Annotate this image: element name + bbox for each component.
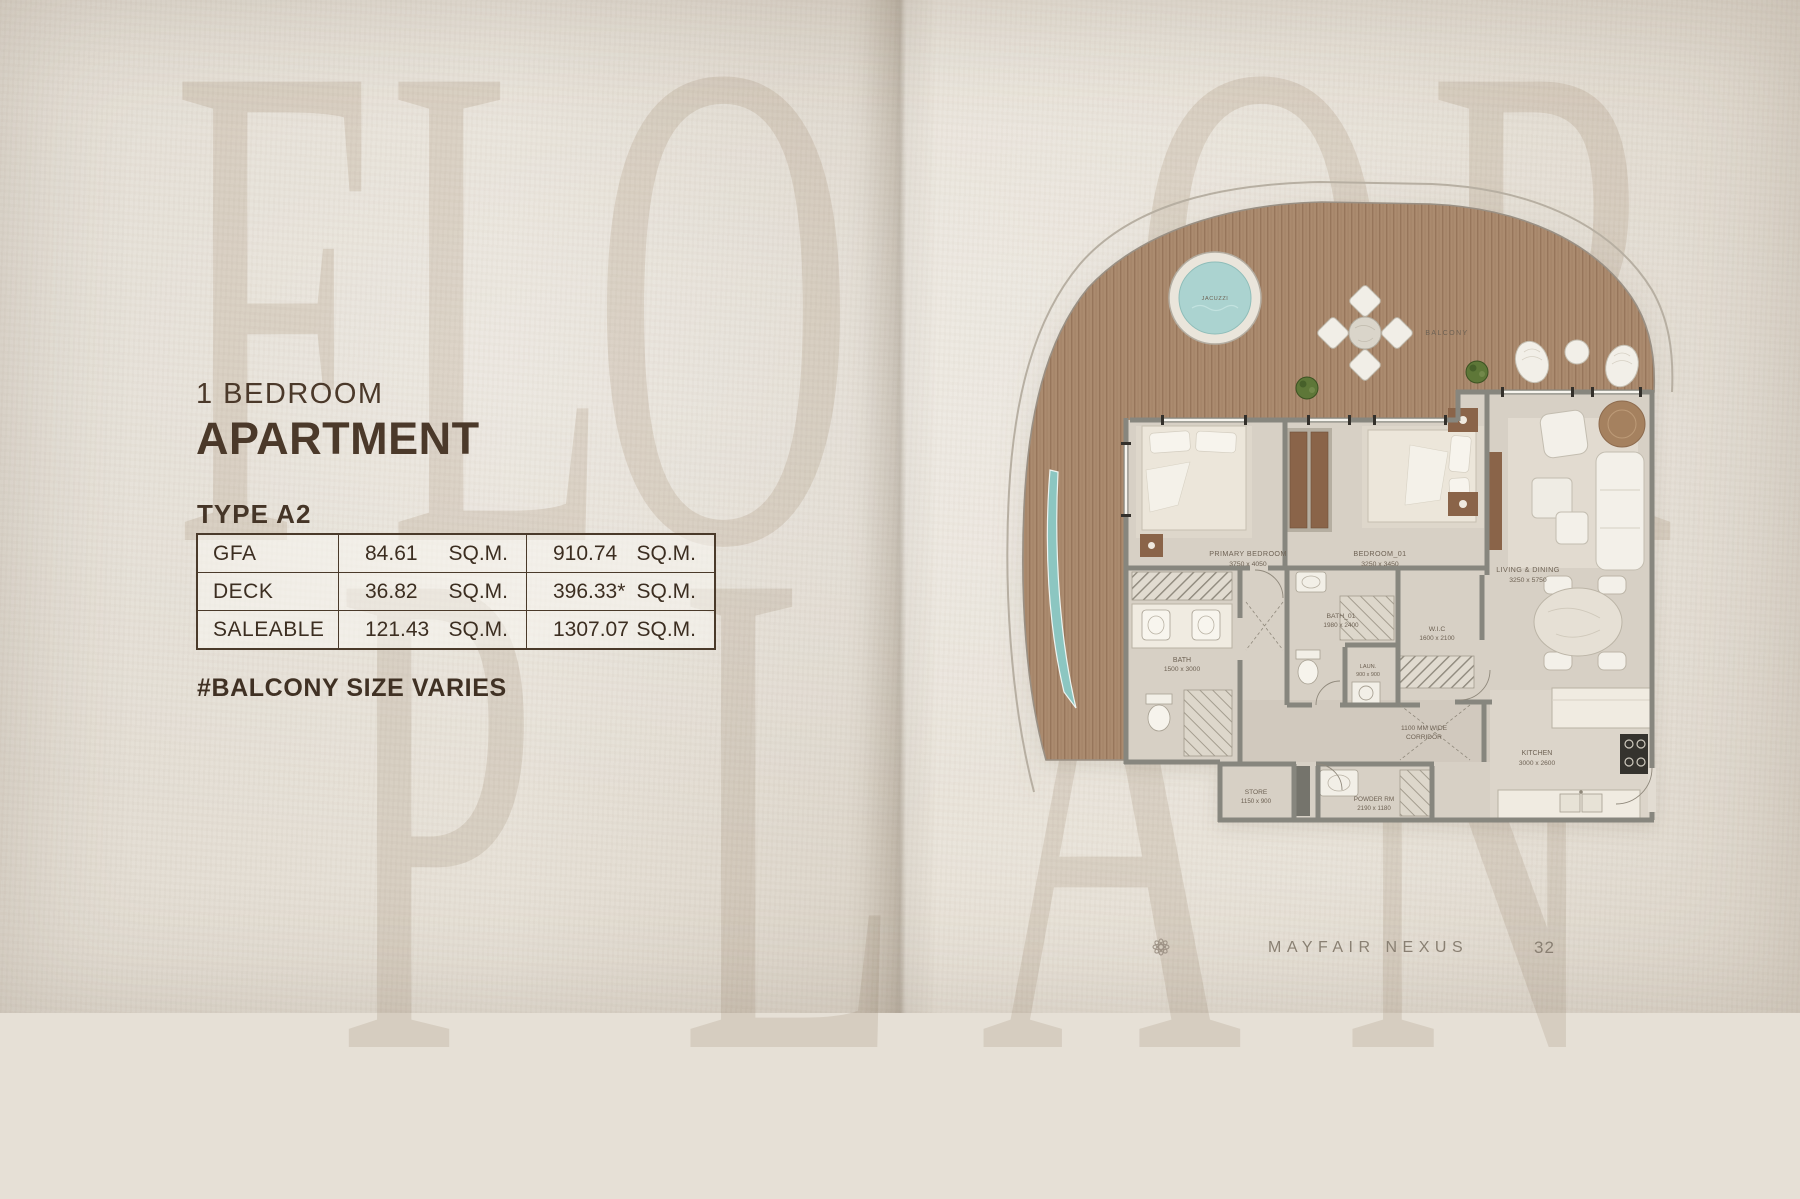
page-header: 1 BEDROOM APARTMENT: [196, 378, 480, 465]
table-cell-alt: 910.74 SQ.M.: [527, 535, 714, 573]
area-value: 396.33*: [553, 580, 625, 604]
floor-plan: JACUZZI BALCONY: [980, 180, 1680, 840]
jacuzzi: JACUZZI: [1169, 252, 1261, 344]
bath01-dims: 1980 x 2400: [1323, 622, 1359, 629]
toilet: [1146, 694, 1172, 704]
corridor-floor: [1240, 700, 1490, 762]
area-unit: SQ.M.: [448, 580, 508, 604]
corridor-label-1: 1100 MM WIDE: [1401, 725, 1448, 732]
table-cell-sqm: 84.61 SQ.M.: [339, 535, 527, 573]
area-value: 121.43: [365, 618, 429, 642]
bath01-label: BATH_01: [1327, 613, 1356, 620]
area-value: 1307.07: [553, 618, 629, 642]
jacuzzi-label: JACUZZI: [1202, 296, 1229, 302]
table-cell-alt: 1307.07 SQ.M.: [527, 611, 714, 648]
area-table: GFA 84.61 SQ.M. 910.74 SQ.M. DECK 36.82 …: [196, 533, 716, 650]
living-dining-dims: 3250 x 5750: [1509, 577, 1547, 584]
door-gap: [1648, 768, 1656, 812]
powder-label: POWDER RM: [1354, 796, 1394, 803]
plant-icon: [1466, 361, 1488, 383]
shower: [1400, 770, 1430, 816]
primary-bedroom-dims: 3750 x 4050: [1229, 561, 1267, 568]
closet-hatch: [1132, 572, 1232, 600]
table-row-label: GFA: [198, 535, 339, 573]
wic-label: W.I.C: [1429, 626, 1446, 633]
area-unit: SQ.M.: [636, 618, 696, 642]
dining-set: [1534, 576, 1626, 670]
kitchen-label: KITCHEN: [1522, 750, 1553, 757]
area-unit: SQ.M.: [448, 618, 508, 642]
footer-brand: MAYFAIR NEXUS: [1268, 939, 1468, 957]
area-value: 910.74: [553, 542, 617, 566]
bath-dims: 1500 x 3000: [1164, 666, 1201, 673]
table-row-label: SALEABLE: [198, 611, 339, 648]
area-unit: SQ.M.: [636, 580, 696, 604]
table-row-label: DECK: [198, 573, 339, 611]
wic-dims: 1600 x 2100: [1419, 635, 1455, 642]
tv-console: [1489, 452, 1502, 550]
page-title: APARTMENT: [196, 413, 480, 465]
living-dining-label: LIVING & DINING: [1496, 565, 1560, 574]
door-slot: [1296, 766, 1310, 816]
area-unit: SQ.M.: [636, 542, 696, 566]
wic-wardrobe-hatch: [1400, 656, 1474, 688]
corridor-label-2: CORRIDOR: [1406, 734, 1442, 741]
balcony-label: BALCONY: [1425, 330, 1468, 337]
table-cell-alt: 396.33* SQ.M.: [527, 573, 714, 611]
unit-subtitle: 1 BEDROOM: [196, 378, 480, 411]
primary-bedroom-label: PRIMARY BEDROOM: [1209, 549, 1287, 558]
kitchen-sink: [1560, 794, 1580, 812]
balcony-note: #BALCONY SIZE VARIES: [197, 674, 507, 703]
table-cell-sqm: 36.82 SQ.M.: [339, 573, 527, 611]
stove: [1620, 734, 1648, 774]
laundry-closet: [1352, 682, 1380, 704]
laundry-dims: 900 x 900: [1356, 672, 1380, 678]
brand-logo-icon: [1146, 932, 1176, 962]
area-value: 84.61: [365, 542, 418, 566]
bedroom01-label: BEDROOM_01: [1353, 549, 1406, 558]
powder-dims: 2190 x 1180: [1357, 805, 1391, 812]
kitchen-dims: 3000 x 2600: [1519, 760, 1556, 767]
bath-label: BATH: [1173, 657, 1191, 664]
footer-page-number: 32: [1534, 938, 1555, 958]
bedroom01-dims: 3250 x 3450: [1361, 561, 1399, 568]
shower: [1184, 690, 1232, 756]
area-unit: SQ.M.: [448, 542, 508, 566]
unit-type-label: TYPE A2: [197, 499, 311, 530]
store-label: STORE: [1245, 789, 1268, 796]
laundry-label: LAUN.: [1360, 664, 1377, 670]
area-value: 36.82: [365, 580, 418, 604]
store-dims: 1150 x 900: [1241, 798, 1272, 805]
toilet: [1296, 650, 1320, 659]
table-cell-sqm: 121.43 SQ.M.: [339, 611, 527, 648]
plant-icon: [1296, 377, 1318, 399]
wardrobe: [1286, 428, 1332, 532]
